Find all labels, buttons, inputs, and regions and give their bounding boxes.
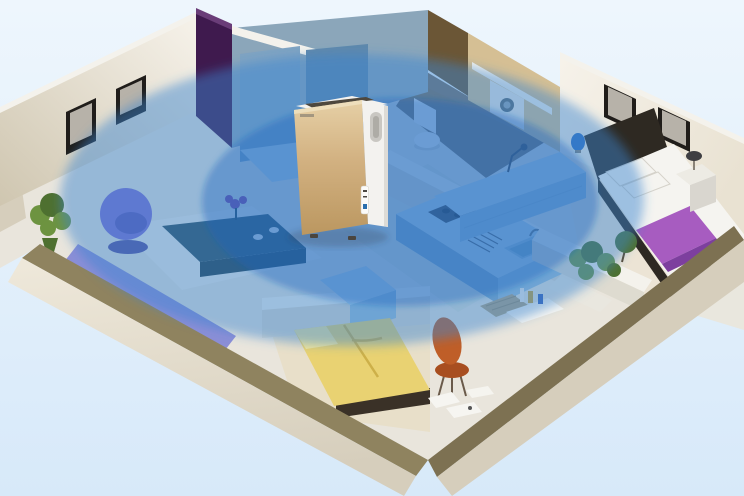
purifier-foot — [348, 236, 356, 240]
apartment-coverage-illustration — [0, 0, 744, 496]
purifier-brand-mark — [300, 114, 314, 117]
purifier-display-mark — [363, 196, 367, 198]
plant-foliage — [40, 220, 56, 236]
coverage-ellipse-inner — [202, 98, 598, 306]
nightstand-lamp-shade — [686, 151, 702, 161]
purifier-indicator — [363, 204, 367, 209]
purifier-display-mark — [363, 190, 367, 192]
purifier-handle-cutout — [373, 116, 379, 138]
purifier-side-shade — [384, 106, 388, 227]
purifier-front-panel — [294, 100, 368, 235]
air-purifier — [288, 96, 388, 247]
scene-canvas — [0, 0, 744, 496]
small-object — [468, 406, 472, 410]
purifier-foot — [310, 234, 318, 238]
